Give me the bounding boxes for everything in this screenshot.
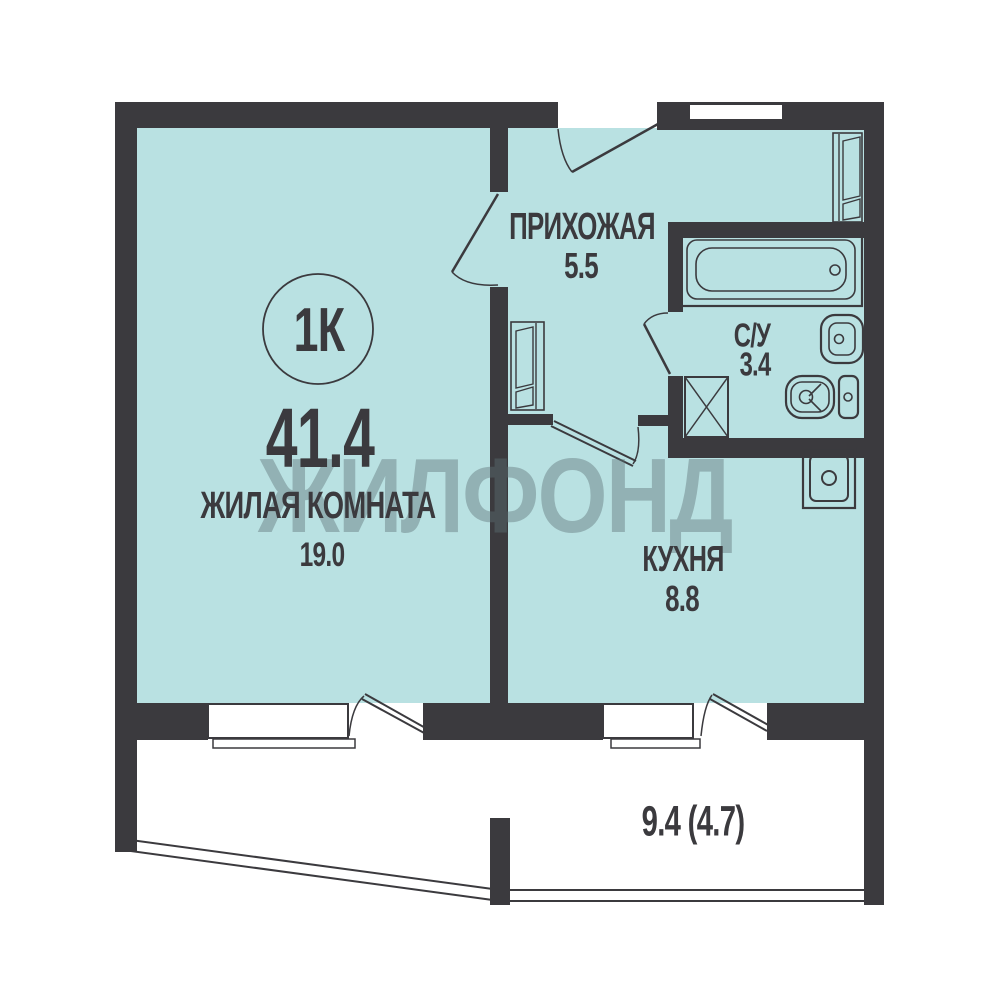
window-kitchen-sill bbox=[611, 739, 700, 748]
room-area-hallway: 5.5 bbox=[564, 248, 598, 284]
window-kitchen bbox=[603, 704, 693, 738]
room-label-living: ЖИЛАЯ КОМНАТА bbox=[201, 487, 436, 525]
wall-bottom-3 bbox=[767, 703, 884, 740]
room-area-balcony: 9.4 (4.7) bbox=[642, 801, 745, 844]
wall-bathroom-left-lower bbox=[668, 376, 683, 438]
total-area: 41.4 bbox=[266, 396, 374, 480]
room-area-living: 19.0 bbox=[300, 538, 345, 572]
window-living bbox=[208, 704, 348, 738]
room-label-kitchen: КУХНЯ bbox=[642, 541, 723, 577]
wall-stub-hallway bbox=[508, 414, 553, 425]
wall-bottom-1 bbox=[115, 703, 208, 740]
wall-divider-upper bbox=[490, 128, 508, 192]
entrance-door-threshold bbox=[690, 105, 782, 119]
floor-plan: ЖИЛФОНД 1К 41.4 ЖИЛАЯ КОМНАТА 19.0 ПРИХО… bbox=[0, 0, 1000, 1000]
room-label-hallway: ПРИХОЖАЯ bbox=[509, 208, 655, 246]
window-living-sill bbox=[213, 739, 355, 748]
room-area-bathroom: 3.4 bbox=[740, 348, 771, 381]
type-badge: 1К bbox=[294, 300, 345, 362]
wall-bottom-2 bbox=[423, 703, 603, 740]
wall-balcony-pillar bbox=[490, 818, 510, 905]
wall-top-left bbox=[115, 102, 558, 128]
wall-right bbox=[864, 102, 884, 905]
room-area-kitchen: 8.8 bbox=[665, 581, 699, 617]
wall-bathroom-top bbox=[668, 222, 864, 238]
